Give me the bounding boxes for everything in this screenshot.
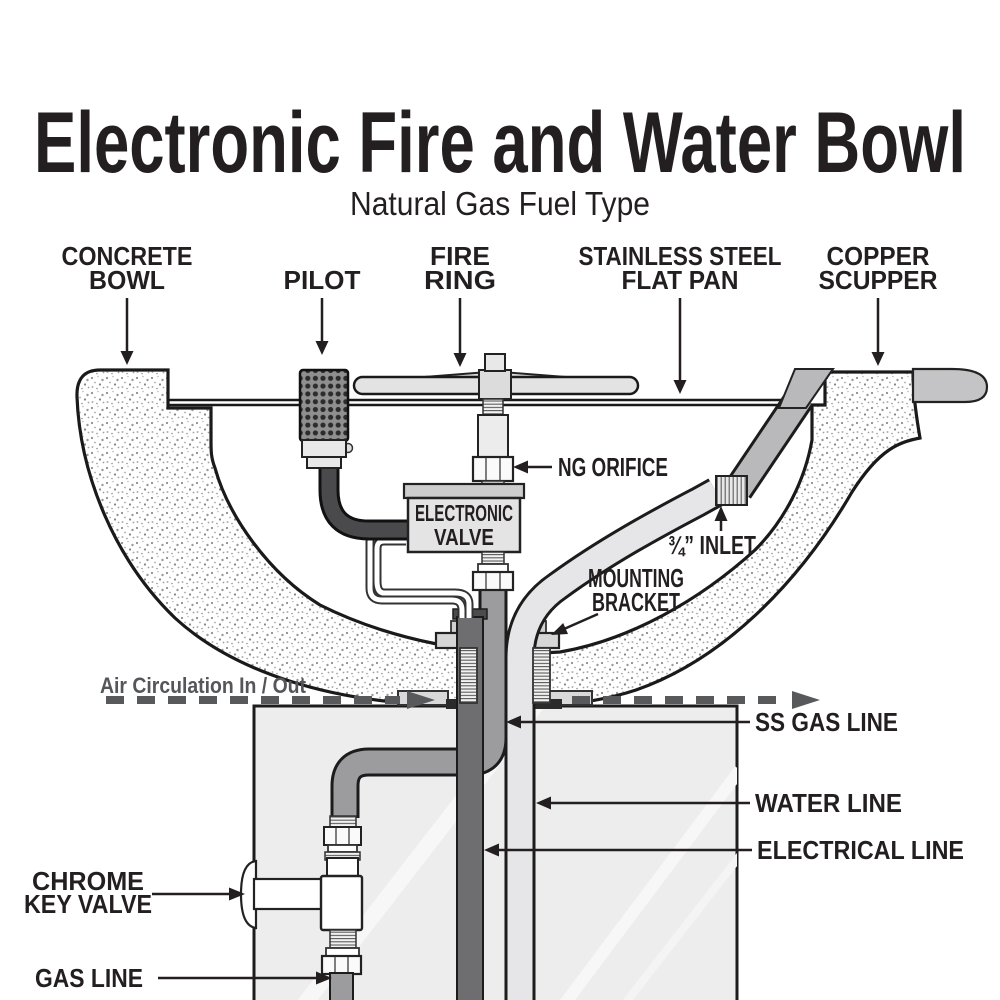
electronic-valve-label-2: VALVE [434,524,494,550]
callout-chrome-key-valve: CHROME KEY VALVE [24,866,245,919]
callout-fire-ring: FIRE RING [424,241,496,367]
svg-text:BOWL: BOWL [89,265,165,295]
electronic-valve-label-1: ELECTRONIC [415,500,513,526]
svg-text:GAS LINE: GAS LINE [35,963,143,993]
svg-text:ELECTRICAL LINE: ELECTRICAL LINE [757,835,964,865]
inlet-fitting [716,476,747,505]
fire-water-bowl-diagram: Electronic Fire and Water Bowl Natural G… [0,0,1000,1000]
copper-scupper-spout [913,369,987,402]
ng-orifice-nut [473,457,513,481]
diagram-page: Electronic Fire and Water Bowl Natural G… [0,0,1000,1000]
svg-text:Air Circulation In / Out: Air Circulation In / Out [100,673,307,698]
callout-pilot: PILOT [284,265,361,355]
page-subtitle: Natural Gas Fuel Type [350,185,650,222]
callout-flat-pan: STAINLESS STEEL FLAT PAN [579,241,782,394]
svg-text:¾” INLET: ¾” INLET [668,530,756,560]
svg-text:PILOT: PILOT [284,265,361,295]
svg-text:NG ORIFICE: NG ORIFICE [558,452,668,482]
svg-text:FLAT PAN: FLAT PAN [622,265,739,295]
burner-column [473,399,513,490]
callout-copper-scupper: COPPER SCUPPER [819,241,938,366]
callout-concrete-bowl: CONCRETE BOWL [62,241,193,365]
callout-air-circulation: Air Circulation In / Out [100,673,307,698]
electronic-valve: ELECTRONIC VALVE [404,484,524,590]
svg-text:BRACKET: BRACKET [592,587,680,617]
gas-line-stub [330,973,353,1000]
fire-ring-assembly [354,354,638,399]
callout-ng-orifice: NG ORIFICE [513,452,668,482]
svg-text:SS GAS LINE: SS GAS LINE [755,707,898,737]
svg-text:WATER LINE: WATER LINE [755,788,902,818]
svg-text:KEY VALVE: KEY VALVE [24,889,152,919]
svg-text:RING: RING [424,265,496,295]
page-title: Electronic Fire and Water Bowl [34,95,966,191]
svg-text:SCUPPER: SCUPPER [819,265,938,295]
pilot-assembly [300,370,353,468]
